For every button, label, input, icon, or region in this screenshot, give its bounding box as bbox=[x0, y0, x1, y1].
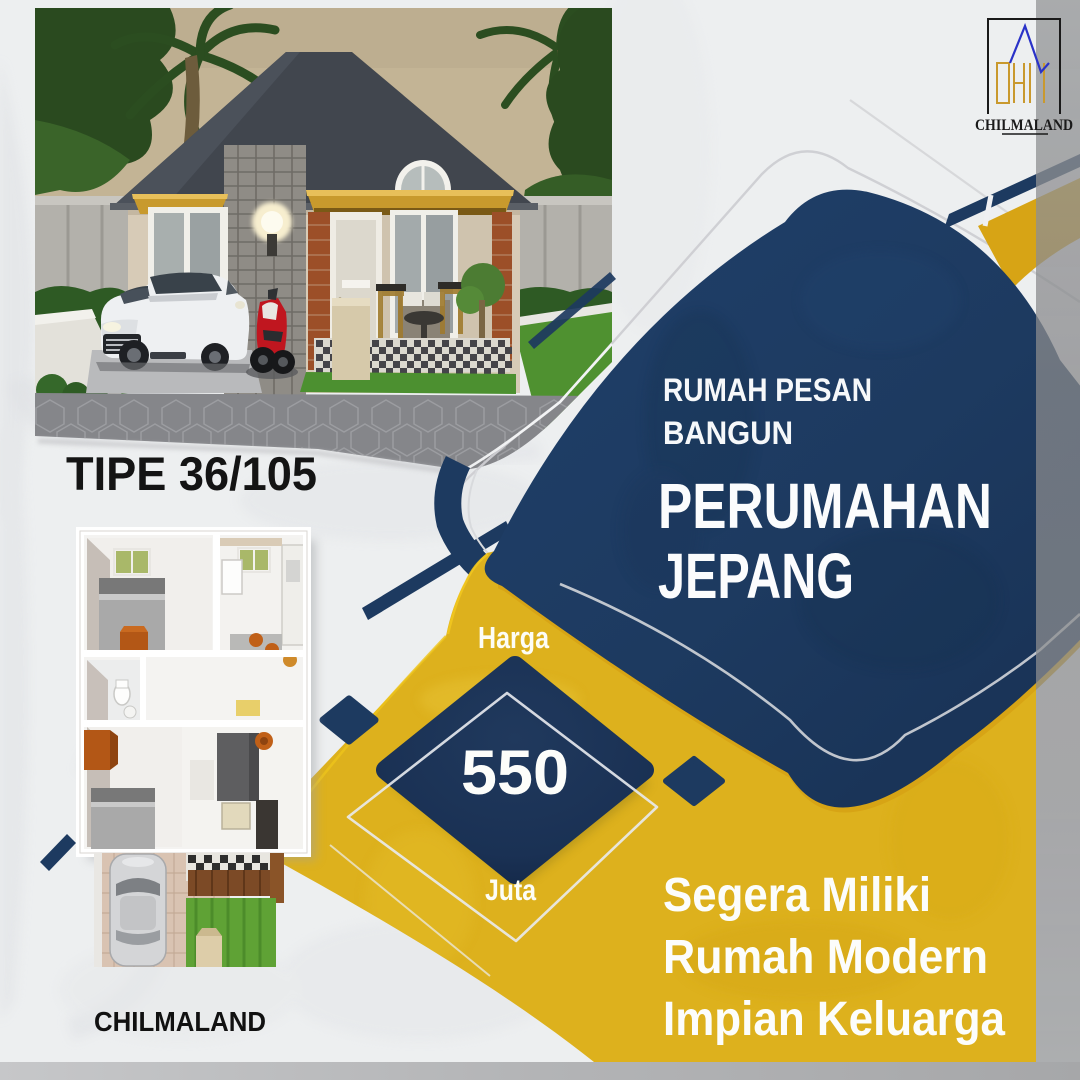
svg-text:JEPANG: JEPANG bbox=[658, 540, 854, 612]
svg-text:Impian Keluarga: Impian Keluarga bbox=[663, 993, 1005, 1046]
svg-text:Harga: Harga bbox=[478, 620, 550, 655]
svg-text:Juta: Juta bbox=[485, 874, 536, 907]
svg-text:Segera Miliki: Segera Miliki bbox=[663, 869, 931, 922]
svg-text:RUMAH PESAN: RUMAH PESAN bbox=[663, 372, 872, 408]
svg-text:PERUMAHAN: PERUMAHAN bbox=[658, 470, 992, 542]
svg-text:TIPE 36/105: TIPE 36/105 bbox=[66, 447, 317, 500]
svg-text:550: 550 bbox=[461, 738, 569, 808]
svg-text:CHILMALAND: CHILMALAND bbox=[975, 117, 1073, 134]
svg-text:Rumah Modern: Rumah Modern bbox=[663, 931, 988, 984]
svg-text:BANGUN: BANGUN bbox=[663, 415, 793, 451]
svg-text:CHILMALAND: CHILMALAND bbox=[94, 1006, 266, 1037]
